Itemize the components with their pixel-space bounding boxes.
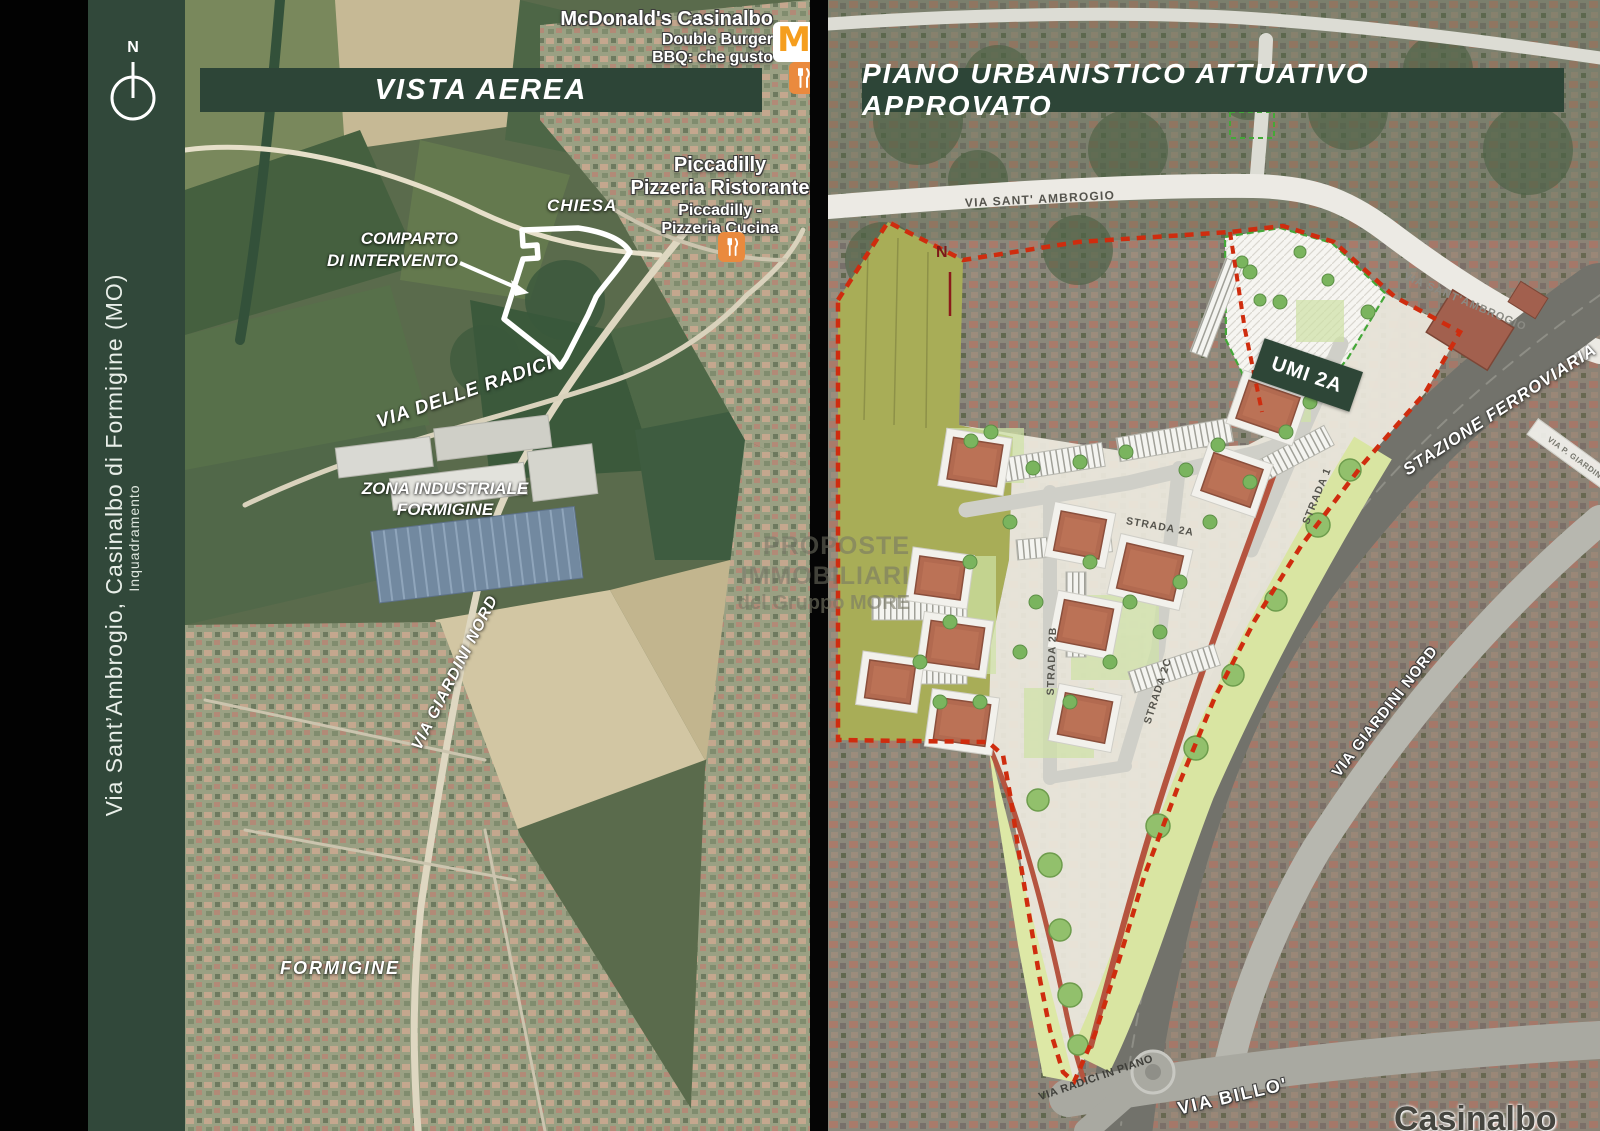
- piccadilly-name2: Pizzeria Ristorante: [600, 177, 810, 200]
- panel-divider: [810, 0, 828, 1131]
- zona-line1: ZONA INDUSTRIALE: [345, 478, 545, 499]
- restaurant-icon: [789, 62, 810, 94]
- mcdonalds-sub2: BBQ: che gusto: [525, 49, 773, 67]
- project-subtitle: Inquadramento: [125, 388, 143, 688]
- comparto-label: COMPARTO DI INTERVENTO: [293, 228, 458, 272]
- north-arrow-icon: N: [936, 244, 948, 262]
- place-label-casinalbo: Casinalbo: [1394, 1100, 1556, 1131]
- project-title: Via Sant’Ambrogio, Casinalbo di Formigin…: [101, 265, 127, 825]
- project-sidebar: N Via Sant’Ambrogio, Casinalbo di Formig…: [88, 0, 185, 1131]
- masterplan-panel: PIANO URBANISTICO ATTUATIVO APPROVATO N …: [828, 0, 1600, 1131]
- comparto-line1: COMPARTO: [293, 228, 458, 250]
- mcdonalds-poi-label: McDonald's Casinalbo Double Burger BBQ: …: [525, 8, 773, 67]
- north-compass-icon: N: [102, 34, 164, 126]
- mcdonalds-name: McDonald's Casinalbo: [525, 8, 773, 31]
- aerial-view-panel: VISTA AEREA McDonald's Casinalbo Double …: [185, 0, 810, 1131]
- compass-north-letter: N: [127, 39, 139, 56]
- piccadilly-poi-label: Piccadilly Pizzeria Ristorante Piccadill…: [600, 154, 810, 238]
- piccadilly-name1: Piccadilly: [600, 154, 810, 177]
- formigine-label: FORMIGINE: [280, 958, 400, 979]
- piccadilly-sub1: Piccadilly -: [600, 202, 810, 220]
- left-black-strip: [0, 0, 88, 1131]
- masterplan-art: [828, 0, 1600, 1131]
- right-panel-title: PIANO URBANISTICO ATTUATIVO APPROVATO: [862, 68, 1564, 112]
- comparto-line2: DI INTERVENTO: [293, 250, 458, 272]
- restaurant-icon: [718, 232, 745, 262]
- strada-2b-label: STRADA 2B: [1045, 626, 1059, 696]
- chiesa-label: CHIESA: [547, 196, 617, 216]
- left-panel-title: VISTA AEREA: [200, 68, 762, 112]
- zona-industriale-label: ZONA INDUSTRIALE FORMIGINE: [345, 478, 545, 520]
- real-estate-location-sheet: N Via Sant’Ambrogio, Casinalbo di Formig…: [0, 0, 1600, 1131]
- mcdonalds-sub1: Double Burger: [525, 31, 773, 49]
- mcdonalds-logo-icon: M: [773, 22, 810, 62]
- piccadilly-sub2: Pizzeria Cucina: [600, 220, 810, 238]
- zona-line2: FORMIGINE: [345, 499, 545, 520]
